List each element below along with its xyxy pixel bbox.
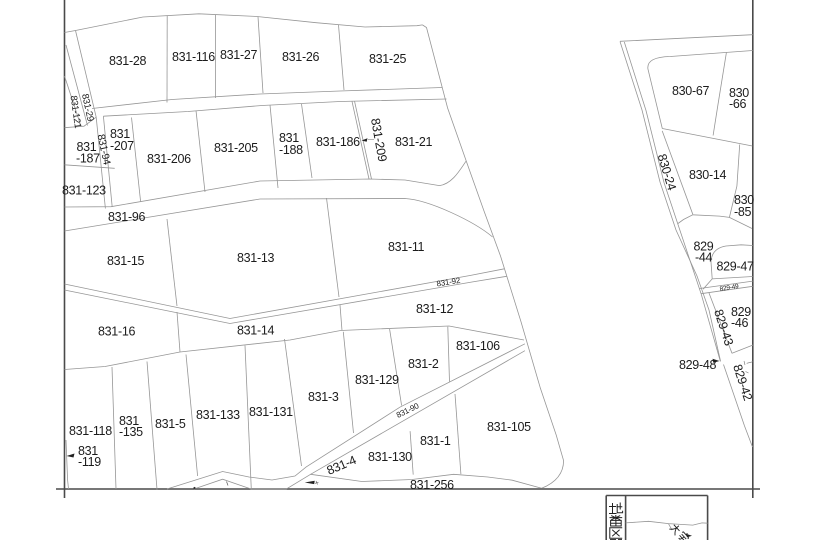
svg-text:831-1: 831-1 bbox=[420, 434, 451, 448]
svg-text:830-14: 830-14 bbox=[689, 168, 726, 182]
svg-text:831-129: 831-129 bbox=[355, 373, 399, 387]
svg-text:831-133: 831-133 bbox=[196, 408, 240, 422]
svg-text:-188: -188 bbox=[279, 143, 303, 157]
svg-text:831-25: 831-25 bbox=[369, 52, 406, 66]
svg-text:831-106: 831-106 bbox=[456, 339, 500, 353]
svg-text:831-28: 831-28 bbox=[109, 54, 146, 68]
svg-text:831-26: 831-26 bbox=[282, 50, 319, 64]
svg-text:831-14: 831-14 bbox=[237, 324, 274, 338]
svg-text:831-105: 831-105 bbox=[487, 420, 531, 434]
svg-text:831-3: 831-3 bbox=[308, 390, 339, 404]
svg-text:-66: -66 bbox=[729, 97, 747, 111]
svg-text:831-118: 831-118 bbox=[69, 424, 112, 438]
svg-text:830-67: 830-67 bbox=[672, 84, 709, 98]
svg-text:831-15: 831-15 bbox=[107, 254, 144, 268]
svg-text:-85: -85 bbox=[734, 205, 752, 219]
svg-text:831-16: 831-16 bbox=[98, 325, 135, 339]
svg-text:831-2: 831-2 bbox=[408, 357, 439, 371]
svg-text:831-123: 831-123 bbox=[62, 184, 106, 198]
svg-text:831-205: 831-205 bbox=[214, 141, 258, 155]
svg-text:831-116: 831-116 bbox=[172, 50, 215, 64]
svg-text:831-12: 831-12 bbox=[416, 302, 453, 316]
svg-text:-135: -135 bbox=[119, 425, 143, 439]
svg-text:831-256: 831-256 bbox=[410, 478, 454, 492]
svg-text:831-13: 831-13 bbox=[237, 251, 274, 265]
svg-text:831-96: 831-96 bbox=[108, 210, 145, 224]
svg-text:831-130: 831-130 bbox=[368, 450, 412, 464]
svg-text:831-11: 831-11 bbox=[388, 240, 425, 254]
svg-text:-46: -46 bbox=[731, 316, 749, 330]
svg-text:829-47: 829-47 bbox=[717, 260, 754, 274]
svg-text:-187: -187 bbox=[76, 152, 100, 166]
svg-text:-44: -44 bbox=[695, 251, 713, 265]
svg-text:831-186: 831-186 bbox=[316, 135, 360, 149]
svg-text:-119: -119 bbox=[78, 455, 101, 469]
svg-text:831-131: 831-131 bbox=[249, 405, 293, 419]
svg-text:-207: -207 bbox=[110, 139, 134, 153]
svg-text:831-206: 831-206 bbox=[147, 152, 191, 166]
svg-text:831-27: 831-27 bbox=[220, 48, 257, 62]
svg-text:829-48: 829-48 bbox=[679, 358, 716, 372]
svg-text:831-21: 831-21 bbox=[395, 135, 432, 149]
svg-text:831-5: 831-5 bbox=[155, 417, 186, 431]
